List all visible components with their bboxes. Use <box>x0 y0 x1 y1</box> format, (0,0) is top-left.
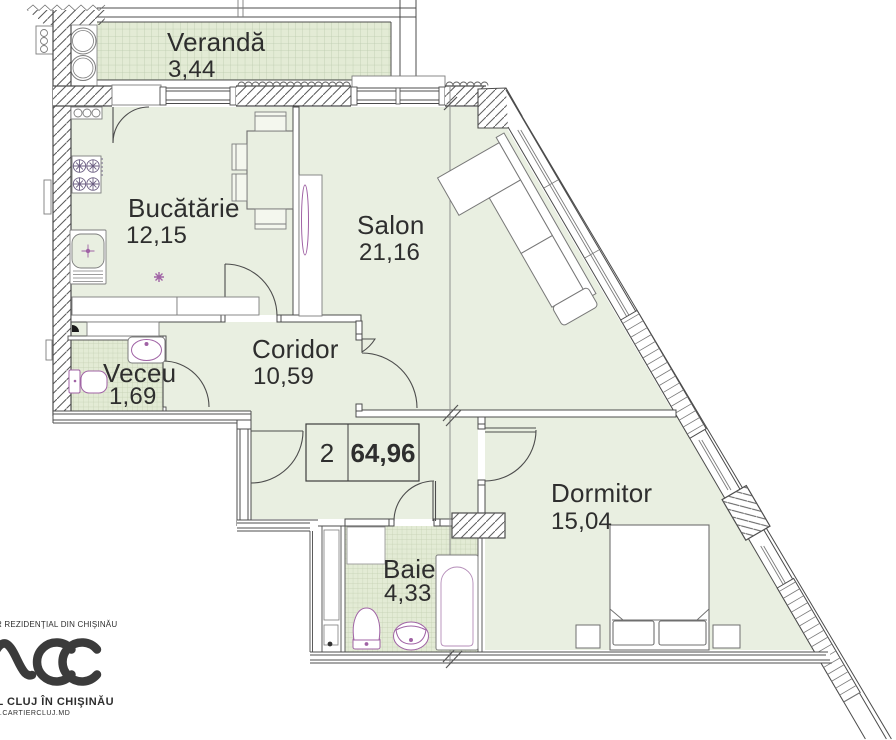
svg-text:IER REZIDENŢIAL DIN CHIŞINĂU: IER REZIDENŢIAL DIN CHIŞINĂU <box>0 620 117 629</box>
svg-text:Bucătărie: Bucătărie <box>128 193 240 223</box>
svg-text:Salon: Salon <box>357 210 425 240</box>
svg-text:4,33: 4,33 <box>384 580 432 607</box>
svg-text:64,96: 64,96 <box>350 438 415 468</box>
svg-text:15,04: 15,04 <box>551 508 612 535</box>
svg-text:3,44: 3,44 <box>168 56 216 83</box>
svg-text:1,69: 1,69 <box>109 383 157 410</box>
svg-text:21,16: 21,16 <box>359 239 420 266</box>
svg-text:Verandă: Verandă <box>167 27 266 57</box>
svg-text:Coridor: Coridor <box>252 334 339 364</box>
svg-text:12,15: 12,15 <box>126 222 187 249</box>
svg-text:2: 2 <box>320 438 334 468</box>
svg-text:Dormitor: Dormitor <box>551 478 652 508</box>
svg-text:10,59: 10,59 <box>253 363 314 390</box>
svg-text:UL CLUJ ÎN CHIŞINĂU: UL CLUJ ÎN CHIŞINĂU <box>0 695 114 708</box>
svg-text:VW.CARTIERCLUJ.MD: VW.CARTIERCLUJ.MD <box>0 710 70 717</box>
